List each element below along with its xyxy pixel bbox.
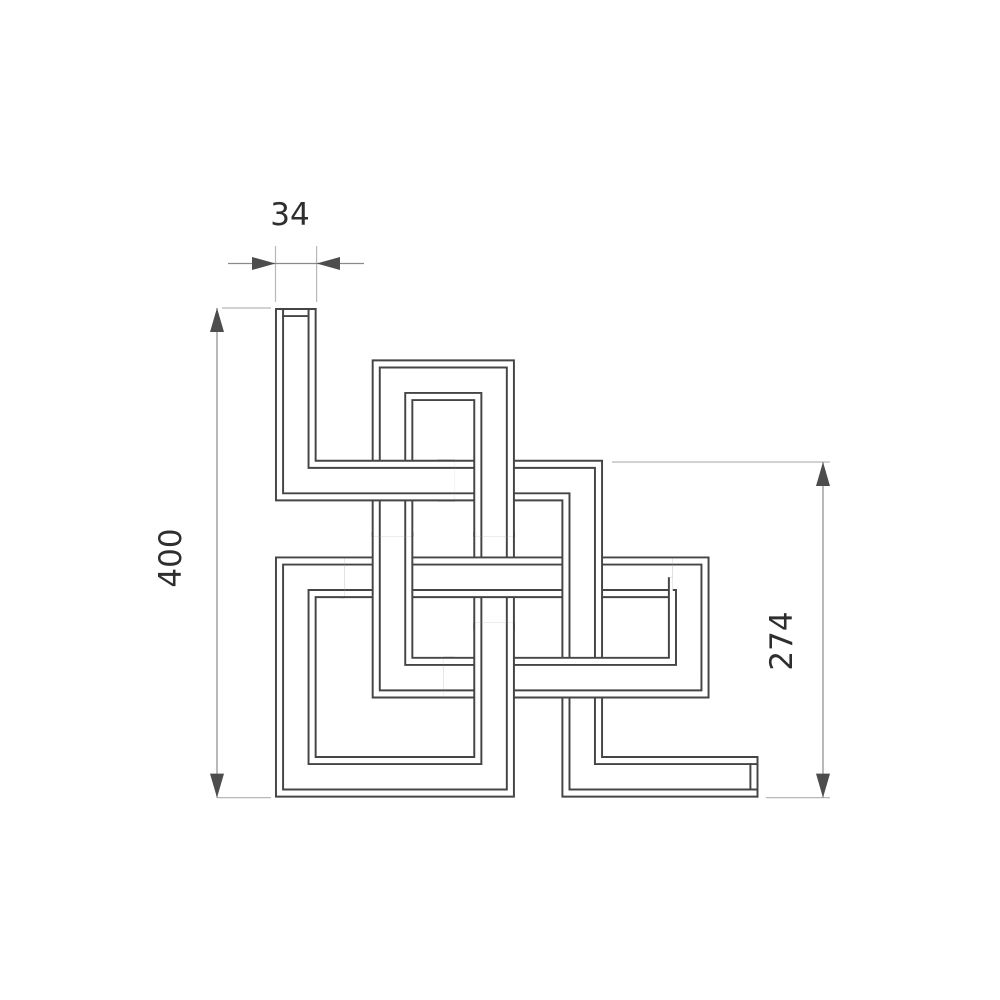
tube-piece-c2-lower-to-r4 <box>393 532 455 678</box>
dim-right-height-label: 274 <box>764 611 800 670</box>
dim-right-height: 274 <box>612 462 830 798</box>
arrowhead-down-icon <box>210 774 224 798</box>
arrowhead-up-icon <box>816 462 830 486</box>
dim-width-label: 34 <box>270 197 309 233</box>
arrowhead-up-icon <box>210 308 224 332</box>
arrowhead-down-icon <box>816 774 830 798</box>
arrowhead-left-icon <box>317 257 340 270</box>
dim-tube-width: 34 <box>228 197 364 302</box>
knot-tube-layer <box>275 308 758 798</box>
dim-height-label: 400 <box>153 528 189 587</box>
tube-piece-c3-top-r1-arch-c2-upper <box>393 380 495 537</box>
arrowhead-right-icon <box>252 257 276 270</box>
dim-total-height: 400 <box>153 308 271 798</box>
technical-drawing-canvas: 34 400 274 <box>0 0 1000 1000</box>
technical-drawing-page: 34 400 274 <box>0 0 1000 1000</box>
